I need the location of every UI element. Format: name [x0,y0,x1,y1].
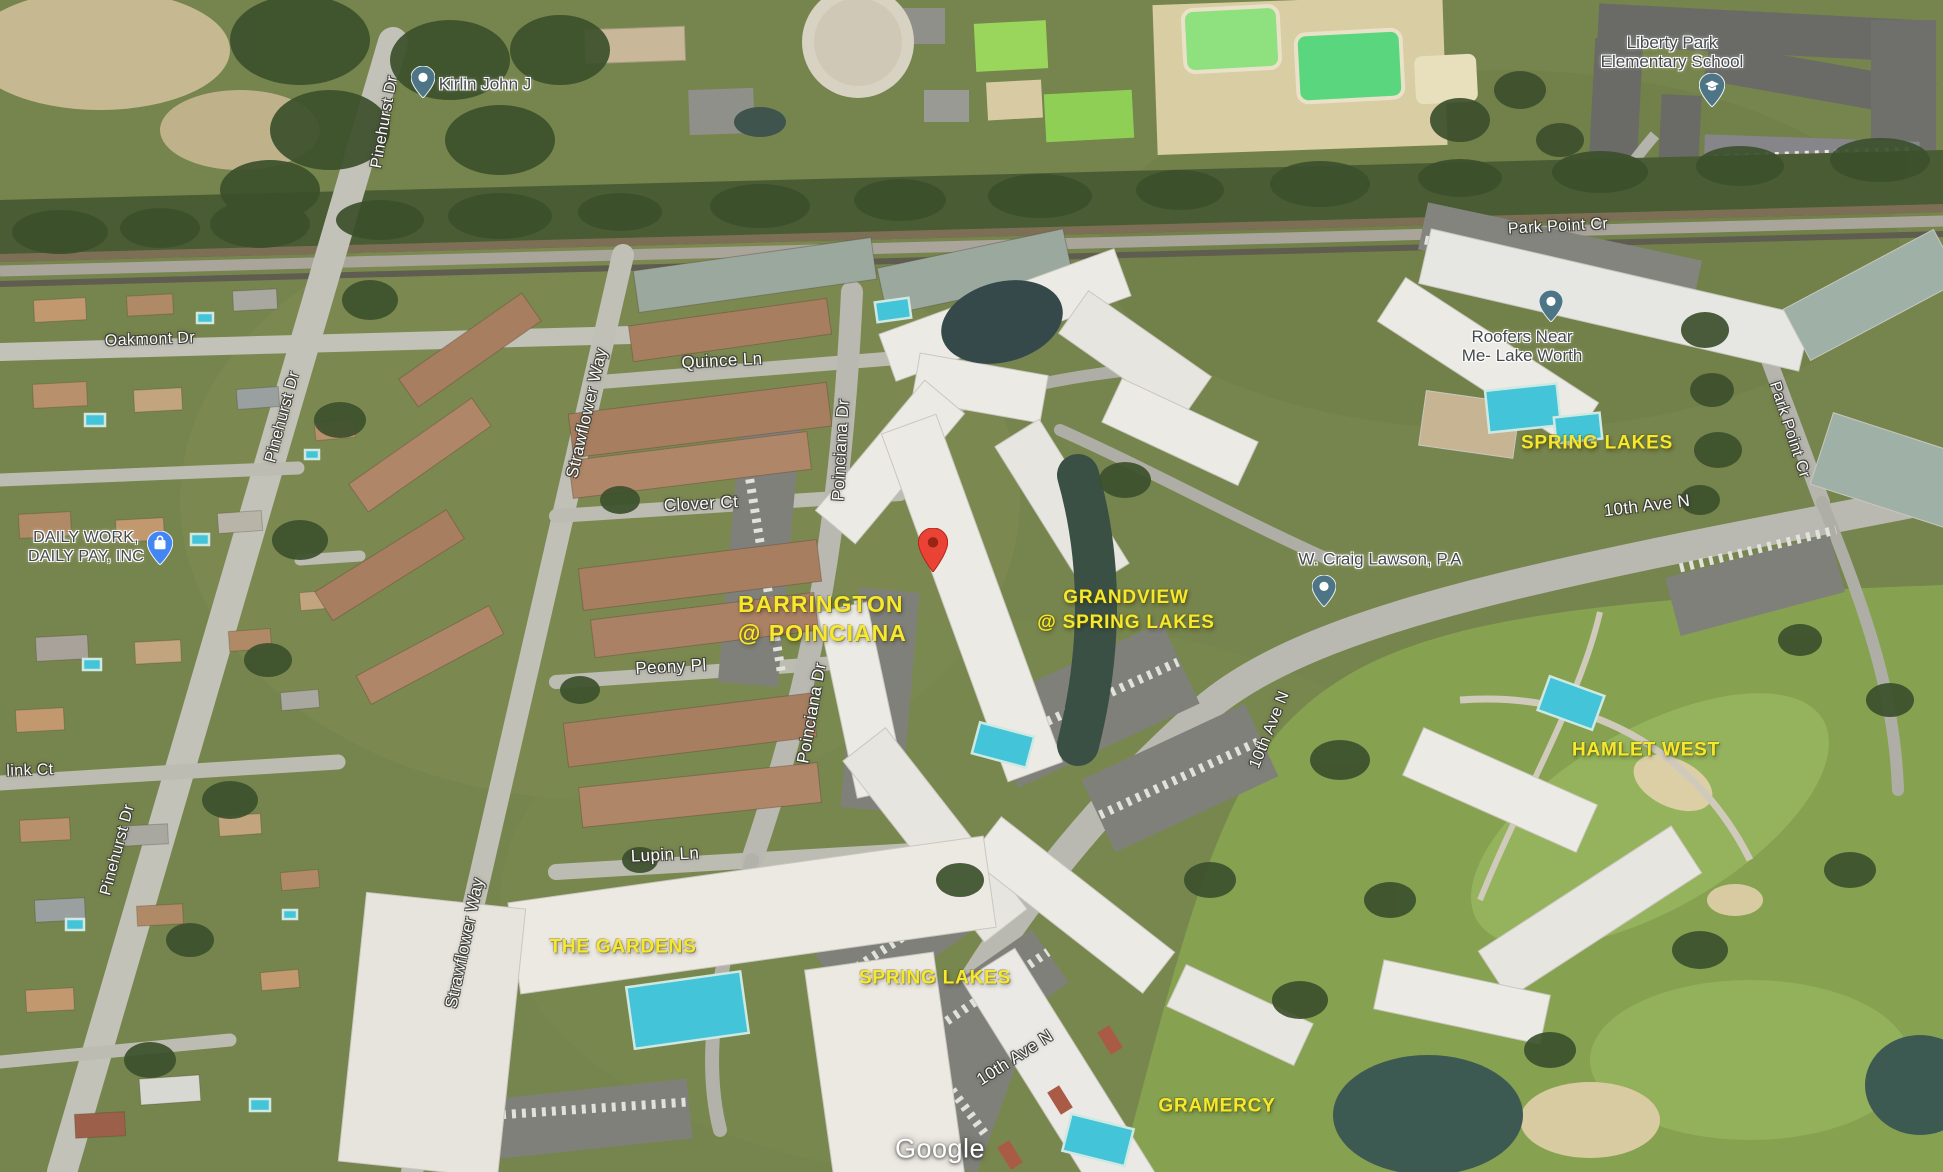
street-label-peony-pl: Peony Pl [635,655,707,679]
poi-label-roofers-near-me[interactable]: Roofers Near Me- Lake Worth [1462,327,1583,365]
street-label-link-ct: link Ct [6,761,54,781]
street-label-lupin-ln: Lupin Ln [630,843,699,867]
street-label-quince-ln: Quince Ln [681,349,763,373]
property-label-grandview-at-spring-lakes: GRANDVIEW @ SPRING LAKES [1037,585,1215,635]
property-label-spring-lakes-s: SPRING LAKES [859,966,1011,991]
location-pin-teal-lawson[interactable] [1312,575,1336,607]
location-pin-teal-kirlin[interactable] [411,66,435,98]
street-label-clover-ct: Clover Ct [663,492,738,516]
property-label-spring-lakes-ne: SPRING LAKES [1521,431,1673,456]
poi-label-daily-work-daily-pay[interactable]: DAILY WORK, DAILY PAY, INC [28,528,144,566]
location-pin-teal-roofers[interactable] [1539,290,1563,322]
property-label-barrington-at-poinciana: BARRINGTON @ POINCIANA [738,590,907,648]
satellite-imagery [0,0,1943,1172]
property-label-gramercy: GRAMERCY [1158,1094,1275,1119]
school-pin-liberty-park[interactable] [1699,73,1725,107]
destination-marker-red-pin[interactable] [918,528,948,572]
map-canvas[interactable]: Pinehurst Dr Oakmont Dr Pinehurst Dr Str… [0,0,1943,1172]
property-label-hamlet-west: HAMLET WEST [1572,738,1720,763]
shopping-pin-blue-daily-work[interactable] [147,531,173,565]
poi-label-w-craig-lawson[interactable]: W. Craig Lawson, P.A [1298,550,1461,569]
street-label-oakmont-dr: Oakmont Dr [105,329,196,350]
property-label-the-gardens: THE GARDENS [549,935,696,960]
poi-label-kirlin-john-j[interactable]: Kirlin John J [439,75,532,94]
google-logo[interactable]: Google [895,1134,985,1165]
poi-label-liberty-park-elementary[interactable]: Liberty Park Elementary School [1601,33,1744,71]
